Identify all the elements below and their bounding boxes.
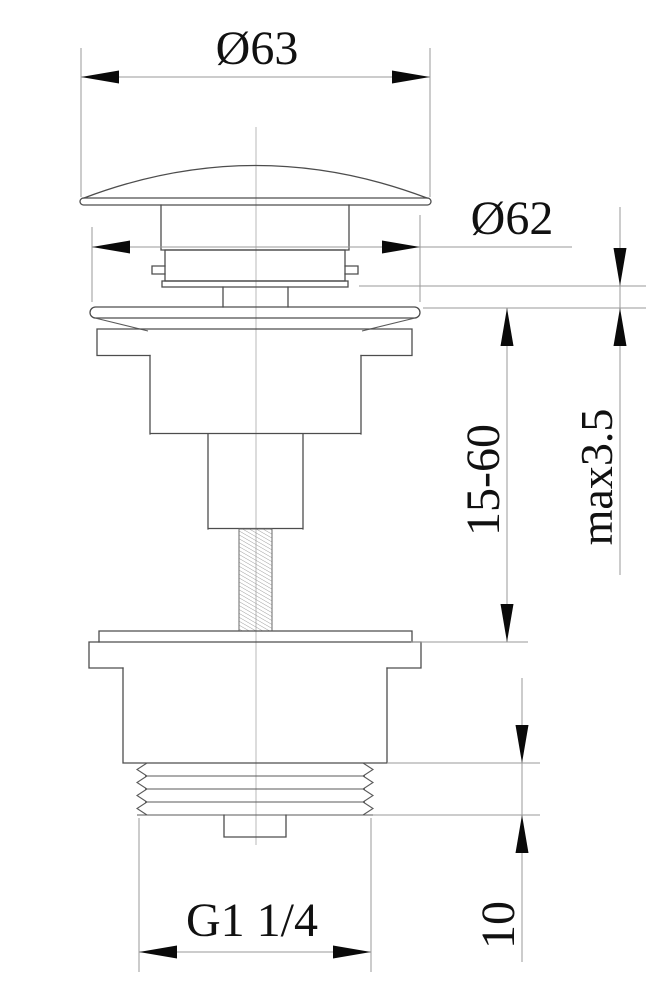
arrow-up-icon (516, 815, 529, 853)
arrow-right-icon (392, 71, 430, 84)
bottom-tab (224, 815, 286, 837)
technical-drawing-canvas: Ø63 Ø62 max3.5 15-60 10 (0, 0, 656, 1000)
dim-thread-length: 10 (373, 678, 540, 962)
plug-body-block (152, 250, 358, 307)
clamping-range-label: 15-60 (457, 424, 510, 536)
lower-body (123, 668, 387, 763)
arrow-down-icon (614, 248, 627, 286)
seal-washer (90, 307, 420, 331)
arrow-left-icon (81, 71, 119, 84)
arrow-up-icon (614, 308, 627, 346)
basin-waste-drawing: Ø63 Ø62 max3.5 15-60 10 (0, 0, 656, 1000)
threaded-rod (239, 529, 272, 631)
thread-size-label: G1 1/4 (186, 894, 318, 947)
flange-diameter-label: Ø62 (471, 192, 554, 245)
dim-clamping-range: 15-60 (411, 308, 528, 642)
thread-section (137, 763, 373, 815)
max-thickness-label: max3.5 (571, 409, 622, 546)
cap-dome (80, 166, 431, 206)
arrow-right-icon (333, 946, 371, 959)
cap-neck (161, 205, 349, 250)
arrow-right-icon (382, 241, 420, 254)
arrow-down-icon (516, 725, 529, 763)
arrow-left-icon (92, 241, 130, 254)
thread-length-label: 10 (472, 901, 525, 949)
valve-body (150, 356, 361, 435)
upper-nut-block (97, 329, 412, 356)
stem-block (208, 434, 303, 529)
dim-thread-size: G1 1/4 (139, 818, 371, 972)
lower-flange-plates (89, 631, 421, 668)
cap-diameter-label: Ø63 (216, 22, 299, 75)
arrow-up-icon (501, 308, 514, 346)
arrow-down-icon (501, 604, 514, 642)
arrow-left-icon (139, 946, 177, 959)
dim-cap-diameter: Ø63 (81, 22, 430, 197)
